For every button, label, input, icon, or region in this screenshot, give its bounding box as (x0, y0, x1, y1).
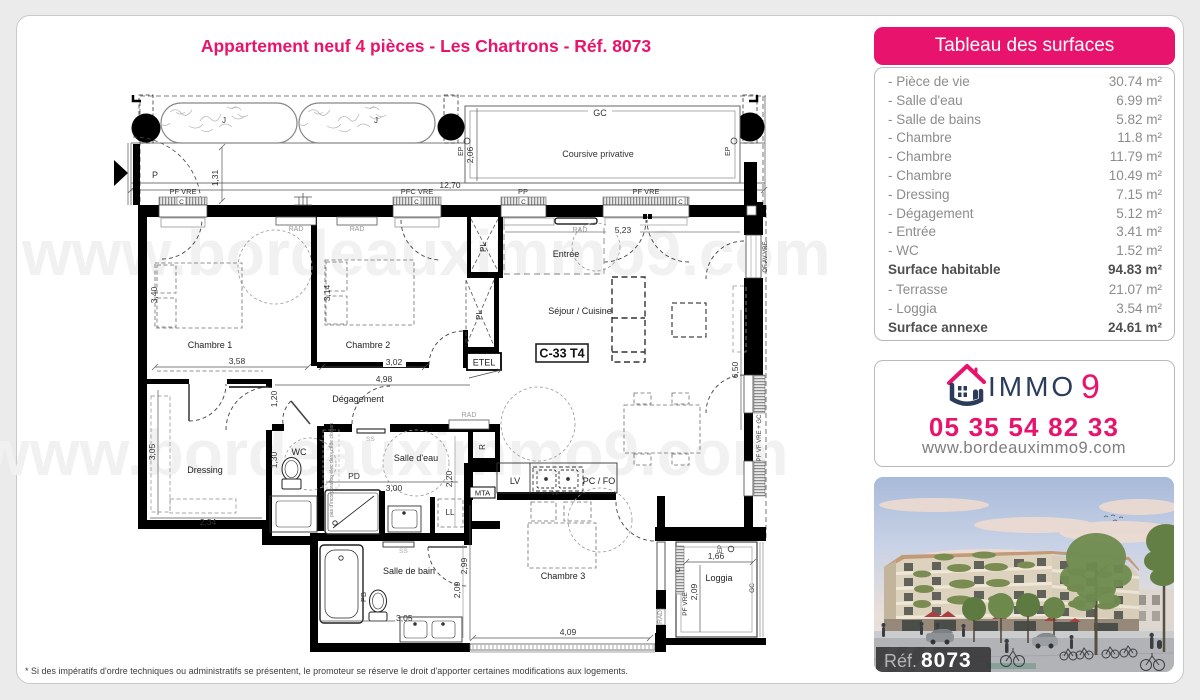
svg-text:PD: PD (348, 471, 360, 481)
svg-text:MTA: MTA (475, 489, 490, 498)
svg-text:pas d'incorporation élec dans: pas d'incorporation élec dans cette cloi… (329, 423, 335, 517)
svg-text:Salle d'eau: Salle d'eau (394, 453, 438, 463)
svg-text:RAD: RAD (289, 226, 304, 233)
svg-text:SS: SS (399, 548, 408, 555)
svg-text:Entrée: Entrée (553, 249, 580, 259)
svg-text:2,09: 2,09 (452, 581, 462, 598)
svg-text:RAD: RAD (657, 610, 664, 624)
svg-text:Chambre 1: Chambre 1 (188, 340, 233, 350)
svg-text:Salle de bain: Salle de bain (383, 566, 435, 576)
svg-text:PP: PP (518, 187, 528, 196)
svg-text:5,23: 5,23 (615, 225, 632, 235)
svg-text:PC / FO: PC / FO (583, 476, 616, 486)
svg-text:Chambre 2: Chambre 2 (346, 340, 391, 350)
svg-text:PF VRE: PF VRE (682, 592, 689, 616)
svg-text:3,02: 3,02 (386, 357, 403, 367)
svg-text:9: 9 (1081, 368, 1100, 406)
svg-text:C: C (675, 567, 682, 572)
svg-text:EP: EP (725, 146, 732, 156)
svg-text:Chambre 3: Chambre 3 (541, 571, 586, 581)
svg-text:2,34: 2,34 (200, 517, 217, 527)
svg-text:R: R (478, 444, 487, 450)
svg-text:3,05: 3,05 (396, 613, 413, 623)
svg-text:Coursive privative: Coursive privative (562, 149, 634, 159)
svg-text:Séjour / Cuisine: Séjour / Cuisine (548, 306, 612, 316)
svg-text:2,20: 2,20 (444, 470, 454, 487)
svg-text:PL: PL (475, 310, 484, 320)
svg-text:12,70: 12,70 (439, 180, 461, 190)
svg-text:PL: PL (479, 242, 488, 252)
svg-text:PF VF VRE + GC: PF VF VRE + GC (757, 414, 763, 462)
svg-text:4,09: 4,09 (560, 627, 577, 637)
svg-text:1,20: 1,20 (269, 390, 279, 407)
svg-text:OF AV VRE: OF AV VRE (763, 241, 769, 272)
svg-text:LV: LV (510, 476, 520, 486)
svg-text:2,06: 2,06 (465, 146, 475, 163)
svg-text:WC: WC (292, 447, 307, 457)
svg-text:2,99: 2,99 (459, 557, 469, 574)
svg-text:GC: GC (593, 108, 607, 118)
svg-text:PF VRE: PF VRE (169, 187, 196, 196)
svg-text:6,50: 6,50 (730, 361, 740, 378)
svg-text:J: J (374, 116, 378, 125)
svg-text:2,09: 2,09 (689, 583, 699, 600)
svg-text:RAD: RAD (573, 227, 588, 234)
svg-text:LL: LL (446, 508, 455, 517)
svg-text:1,30: 1,30 (269, 451, 279, 468)
svg-text:C-33 T4: C-33 T4 (539, 347, 584, 361)
svg-text:4,98: 4,98 (376, 374, 393, 384)
svg-text:RAD: RAD (462, 412, 477, 419)
svg-text:Dégagement: Dégagement (332, 394, 384, 404)
svg-text:8073: 8073 (921, 649, 972, 672)
svg-text:RAD: RAD (350, 226, 365, 233)
svg-text:SS: SS (366, 436, 375, 443)
svg-text:3,05: 3,05 (147, 443, 157, 460)
svg-text:Loggia: Loggia (705, 573, 732, 583)
svg-text:1,31: 1,31 (210, 169, 220, 186)
svg-text:EP: EP (458, 146, 465, 156)
svg-text:PF VRE: PF VRE (632, 187, 659, 196)
svg-text:3,14: 3,14 (322, 284, 332, 301)
svg-text:GC: GC (749, 583, 756, 593)
svg-text:J: J (222, 116, 226, 125)
svg-text:Dressing: Dressing (187, 465, 223, 475)
svg-text:3,00: 3,00 (386, 483, 403, 493)
svg-text:ETEL: ETEL (473, 358, 496, 368)
svg-text:3,40: 3,40 (149, 286, 159, 303)
svg-text:P: P (152, 170, 158, 180)
svg-text:IMMO: IMMO (988, 371, 1076, 402)
svg-text:3,58: 3,58 (229, 356, 246, 366)
svg-text:PFC VRE: PFC VRE (401, 187, 434, 196)
svg-text:1,66: 1,66 (708, 551, 725, 561)
svg-text:Réf.: Réf. (884, 651, 917, 671)
svg-text:PB: PB (359, 592, 368, 602)
